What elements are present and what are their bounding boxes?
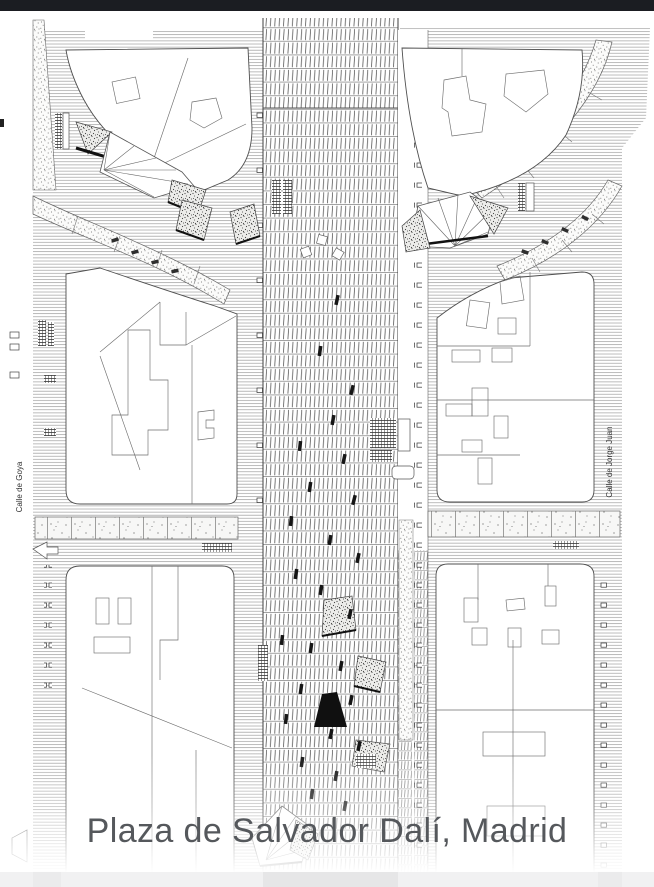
- reflection-ghost-right: [598, 872, 622, 887]
- site-plan-drawing: Calle de Goya Calle de Jorge Juan: [0, 0, 654, 887]
- image-caption: Plaza de Salvador Dalí, Madrid: [0, 813, 654, 850]
- footer-reflection-band: [0, 872, 654, 887]
- reflection-ghost-left: [33, 872, 61, 887]
- street-label-jorge-juan: Calle de Jorge Juan: [605, 426, 614, 497]
- reflection-ghost-center: [263, 872, 398, 887]
- plan-image: Calle de Goya Calle de Jorge Juan: [0, 0, 654, 887]
- street-label-goya: Calle de Goya: [15, 461, 24, 512]
- city-block-mid-right: [437, 272, 594, 502]
